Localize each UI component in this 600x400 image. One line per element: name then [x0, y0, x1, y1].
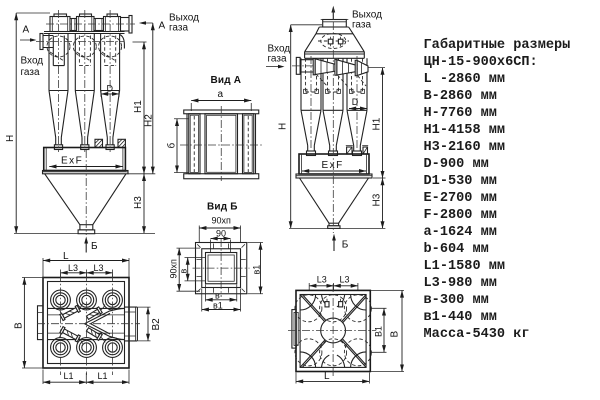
svg-text:b-604 мм: b-604 мм: [424, 242, 489, 257]
svg-text:газа: газа: [169, 22, 188, 33]
svg-text:L1-1580 мм: L1-1580 мм: [424, 259, 506, 274]
svg-text:Н1: Н1: [133, 100, 144, 113]
svg-text:а: а: [218, 89, 224, 100]
svg-text:а-1624 мм: а-1624 мм: [424, 225, 497, 240]
svg-text:90хп: 90хп: [212, 216, 232, 226]
svg-text:газа: газа: [268, 53, 287, 64]
svg-text:Габаритные размеры: Габаритные размеры: [424, 37, 571, 53]
svg-text:L3: L3: [94, 263, 104, 273]
svg-text:в1: в1: [213, 300, 223, 310]
svg-text:Н1-4158 мм: Н1-4158 мм: [424, 123, 506, 138]
svg-text:В-2860 мм: В-2860 мм: [424, 89, 497, 104]
svg-text:Масса-5430 кг: Масса-5430 кг: [424, 327, 530, 342]
svg-text:L3-980 мм: L3-980 мм: [424, 276, 497, 291]
svg-text:ЦН-15-900х6СП:: ЦН-15-900х6СП:: [424, 55, 538, 70]
svg-text:L3: L3: [317, 275, 327, 285]
svg-text:А: А: [159, 21, 166, 32]
svg-text:в: в: [215, 290, 220, 300]
svg-text:В: В: [390, 331, 401, 338]
svg-text:90: 90: [216, 229, 226, 239]
svg-text:Н-7760 мм: Н-7760 мм: [424, 106, 497, 121]
svg-text:В2: В2: [151, 318, 162, 331]
svg-text:F-2800 мм: F-2800 мм: [424, 208, 497, 223]
svg-text:в1: в1: [251, 265, 261, 275]
svg-text:ЕхF: ЕхF: [322, 160, 344, 171]
svg-text:ЕхF: ЕхF: [61, 156, 83, 167]
svg-text:L -2860 мм: L -2860 мм: [424, 72, 506, 87]
svg-text:L1: L1: [64, 371, 74, 381]
svg-text:в-300 мм: в-300 мм: [424, 293, 489, 308]
svg-text:D1-530 мм: D1-530 мм: [424, 174, 497, 189]
svg-text:Н3-2160 мм: Н3-2160 мм: [424, 140, 506, 155]
svg-text:L3: L3: [340, 275, 350, 285]
svg-text:В1: В1: [374, 326, 384, 337]
svg-text:Н1: Н1: [372, 117, 383, 130]
svg-text:L: L: [324, 371, 330, 382]
svg-text:В: В: [14, 322, 25, 329]
svg-text:Вид Б: Вид Б: [207, 202, 238, 213]
svg-text:D-900 мм: D-900 мм: [424, 157, 489, 172]
svg-text:Б: Б: [91, 241, 98, 252]
svg-text:в1-440 мм: в1-440 мм: [424, 310, 497, 325]
svg-text:L1: L1: [98, 371, 108, 381]
svg-text:Н3: Н3: [133, 196, 144, 209]
svg-text:Вход: Вход: [21, 55, 44, 66]
svg-text:Н2: Н2: [144, 114, 155, 127]
svg-text:90хп: 90хп: [168, 259, 178, 279]
svg-text:Н3: Н3: [372, 193, 383, 206]
svg-text:в: в: [179, 269, 189, 274]
svg-text:газа: газа: [21, 67, 40, 78]
svg-text:L3: L3: [68, 263, 78, 273]
svg-text:Е-2700 мм: Е-2700 мм: [424, 191, 497, 206]
svg-text:газа: газа: [352, 19, 371, 30]
svg-text:А: А: [23, 25, 30, 36]
svg-text:Б: Б: [342, 240, 349, 251]
svg-text:Н: Н: [278, 123, 289, 130]
svg-text:D: D: [352, 97, 359, 107]
svg-text:Вид А: Вид А: [211, 75, 242, 86]
svg-text:Н: Н: [5, 135, 16, 142]
svg-text:б: б: [166, 143, 178, 149]
